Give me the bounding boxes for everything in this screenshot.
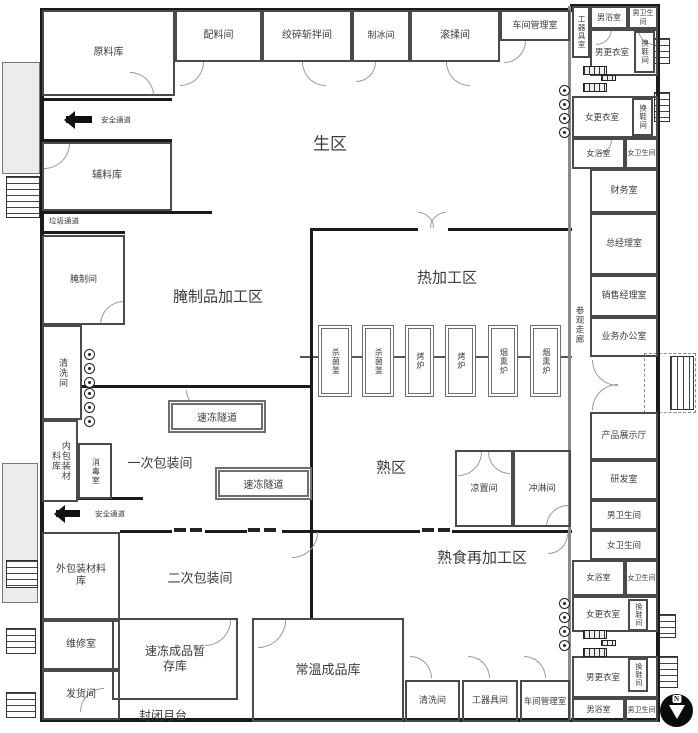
handwash-station-icon bbox=[84, 388, 95, 427]
cooling-room-label: 凉置间 bbox=[470, 483, 497, 494]
womens-bath-top-label: 女浴室 bbox=[587, 149, 611, 159]
mens-bath-top: 男浴室 bbox=[590, 6, 628, 29]
ice-making-room-label: 制冰间 bbox=[367, 30, 394, 41]
freeze-tunnel-2: 速冻隧道 bbox=[215, 467, 312, 500]
mens-toilet-mid-label: 男卫生间 bbox=[607, 510, 641, 521]
locker-bench-icon bbox=[583, 630, 607, 639]
curing-room: 腌制间 bbox=[42, 235, 125, 325]
ice-making-room: 制冰间 bbox=[352, 10, 410, 62]
business-office: 业务办公室 bbox=[590, 317, 658, 357]
shipping-room: 发货间 bbox=[42, 670, 120, 720]
smoker-1-label: 烟熏炉 bbox=[499, 348, 508, 375]
sales-manager-office-label: 销售经理室 bbox=[601, 290, 646, 301]
sliding-door-tick bbox=[248, 528, 260, 532]
outer-packing-material-warehouse: 外包装材料库 bbox=[42, 532, 120, 620]
womens-toilet-bottom: 女卫生间 bbox=[625, 560, 658, 596]
sliding-door-tick bbox=[422, 528, 434, 532]
mens-toilet-bottom: 男卫生间 bbox=[625, 698, 658, 722]
womens-bath-bottom-label: 女浴室 bbox=[587, 573, 611, 583]
inner-packing-material-warehouse-label: 内包装材料库 bbox=[50, 437, 70, 485]
wall-segment bbox=[42, 231, 125, 234]
compass-north-label: N bbox=[672, 695, 681, 703]
stairs-icon bbox=[6, 560, 38, 588]
washing-room-left-label: 清洗间 bbox=[57, 358, 67, 388]
wall-segment bbox=[310, 228, 313, 418]
workshop-office-top: 车间管理室 bbox=[500, 10, 570, 41]
outer-packing-material-warehouse-label: 外包装材料库 bbox=[52, 564, 110, 589]
frozen-product-temp-storage: 速冻成品暂存库 bbox=[112, 618, 238, 700]
grinding-chopping-room-label: 绞碎斩拌间 bbox=[282, 30, 332, 43]
door-swing-icon bbox=[446, 62, 470, 86]
locker-bench-icon bbox=[583, 648, 607, 657]
compass-icon: N bbox=[660, 694, 693, 727]
ingredient-room: 配料间 bbox=[175, 10, 262, 62]
wall-segment bbox=[452, 530, 572, 533]
shoe-change-room-bottom-m: 换鞋间 bbox=[628, 658, 648, 692]
curing-room-label: 腌制间 bbox=[70, 274, 97, 285]
freeze-tunnel-1: 速冻隧道 bbox=[168, 400, 266, 433]
mens-locker-bottom-label: 男更衣室 bbox=[586, 672, 620, 683]
zone-cured-processing: 腌制品加工区 bbox=[173, 286, 263, 307]
washing-room-bottom-label: 清洗间 bbox=[419, 695, 446, 706]
door-swing-icon bbox=[548, 534, 568, 554]
locker-bench-icon bbox=[601, 75, 616, 81]
zone-hot-processing: 热加工区 bbox=[417, 267, 477, 288]
exit-dashed-outline bbox=[644, 353, 696, 413]
sliding-door-tick bbox=[264, 528, 276, 532]
oven-2-label: 烤炉 bbox=[456, 352, 465, 370]
sterilizer-2: 杀菌釜 bbox=[362, 325, 394, 397]
smoker-2: 烟熏炉 bbox=[530, 325, 561, 397]
womens-toilet-top: 女卫生间 bbox=[625, 138, 658, 169]
workshop-office-bottom-label: 车间管理室 bbox=[524, 696, 567, 707]
zone-secondary-packing: 二次包装间 bbox=[167, 568, 232, 587]
mens-bath-bottom-label: 男浴室 bbox=[587, 705, 611, 715]
door-swing-icon bbox=[430, 212, 446, 228]
zone-cooked-reprocessing: 熟食再加工区 bbox=[437, 547, 527, 568]
cooling-room: 凉置间 bbox=[455, 450, 513, 527]
wall-segment bbox=[120, 530, 172, 533]
disinfection-room-label: 消毒室 bbox=[91, 458, 100, 485]
compass-arrow-icon bbox=[669, 705, 685, 719]
oven-1-label: 烤炉 bbox=[415, 352, 424, 370]
product-showroom-label: 产品展示厅 bbox=[601, 430, 646, 441]
oven-2: 烤炉 bbox=[445, 325, 476, 397]
tool-room-bottom-label: 工器具间 bbox=[472, 695, 508, 706]
door-swing-icon bbox=[592, 384, 618, 410]
door-swing-icon bbox=[356, 62, 376, 82]
door-swing-icon bbox=[180, 62, 204, 86]
shoe-change-room-bottom-m-label: 换鞋间 bbox=[634, 663, 642, 687]
frozen-product-temp-storage-label: 速冻成品暂存库 bbox=[140, 644, 210, 674]
stairs-icon bbox=[6, 628, 36, 654]
zone-cooked-area: 熟区 bbox=[376, 457, 406, 478]
door-swing-icon bbox=[410, 656, 432, 678]
stairs-icon bbox=[658, 656, 678, 688]
shower-room: 冲淋间 bbox=[513, 450, 571, 527]
finance-office: 财务室 bbox=[590, 169, 658, 213]
locker-bench-icon bbox=[583, 83, 607, 92]
disinfection-room: 消毒室 bbox=[78, 443, 112, 499]
door-swing-icon bbox=[592, 360, 618, 386]
workshop-office-top-label: 车间管理室 bbox=[512, 20, 557, 31]
handwash-station-icon bbox=[559, 598, 570, 651]
general-manager-office: 总经理室 bbox=[590, 213, 658, 275]
sliding-door-tick bbox=[174, 528, 186, 532]
locker-bench-icon bbox=[583, 66, 607, 75]
factory-floor-plan: N 原料库配料间绞碎斩拌间制冰间滚揉间车间管理室工器具室男浴室男卫生间男更衣室换… bbox=[0, 0, 698, 733]
wall-segment bbox=[42, 98, 172, 101]
tumbling-room-label: 滚揉间 bbox=[440, 30, 470, 43]
freeze-tunnel-2-label: 速冻隧道 bbox=[244, 476, 284, 491]
sterilizer-1: 杀菌釜 bbox=[318, 325, 352, 397]
raw-material-warehouse: 原料库 bbox=[42, 10, 175, 96]
wall-segment bbox=[205, 530, 247, 533]
sliding-door-tick bbox=[190, 528, 202, 532]
door-swing-icon bbox=[292, 532, 318, 558]
womens-toilet-top-label: 女卫生间 bbox=[628, 149, 656, 158]
mens-toilet-top-label: 男卫生间 bbox=[630, 9, 656, 27]
mens-toilet-top: 男卫生间 bbox=[628, 6, 658, 29]
wall-segment bbox=[448, 228, 572, 231]
maintenance-room: 维修室 bbox=[42, 620, 120, 670]
freeze-tunnel-1-label: 速冻隧道 bbox=[197, 409, 237, 424]
smoker-1: 烟熏炉 bbox=[488, 325, 518, 397]
closed-dock: 封闭月台 bbox=[139, 707, 187, 724]
tool-room-bottom: 工器具间 bbox=[462, 680, 518, 722]
mens-bath-top-label: 男浴室 bbox=[597, 13, 621, 23]
mens-locker-top-label: 男更衣室 bbox=[595, 47, 629, 58]
general-manager-office-label: 总经理室 bbox=[606, 238, 642, 249]
smoker-2-label: 烟熏炉 bbox=[541, 348, 550, 375]
oven-1: 烤炉 bbox=[405, 325, 434, 397]
wall-segment bbox=[310, 228, 418, 231]
rd-room: 研发室 bbox=[590, 460, 658, 500]
grinding-chopping-room: 绞碎斩拌间 bbox=[262, 10, 352, 62]
womens-bath-top: 女浴室 bbox=[572, 138, 625, 169]
womens-toilet-bottom-label: 女卫生间 bbox=[628, 574, 656, 583]
tool-room-top: 工器具室 bbox=[572, 6, 590, 58]
shoe-change-room-top-m-label: 换鞋间 bbox=[640, 39, 648, 65]
raw-material-warehouse-label: 原料库 bbox=[94, 47, 124, 60]
womens-bath-bottom: 女浴室 bbox=[572, 560, 625, 596]
business-office-label: 业务办公室 bbox=[601, 331, 646, 342]
shoe-change-room-bottom-f-label: 换鞋间 bbox=[634, 603, 642, 627]
ambient-product-warehouse: 常温成品库 bbox=[252, 618, 404, 722]
zone-primary-packing: 一次包装间 bbox=[127, 453, 192, 472]
tumbling-room: 滚揉间 bbox=[410, 10, 500, 62]
safety-passage-top-label: 安全通道 bbox=[101, 115, 131, 126]
workshop-office-bottom: 车间管理室 bbox=[520, 680, 570, 722]
aux-material-warehouse: 辅料库 bbox=[42, 142, 172, 211]
tool-room-top-label: 工器具室 bbox=[577, 15, 585, 49]
visit-corridor: 参观走廊 bbox=[574, 306, 586, 344]
ambient-product-warehouse-label: 常温成品库 bbox=[295, 662, 360, 678]
sales-manager-office: 销售经理室 bbox=[590, 275, 658, 317]
inner-packing-material-warehouse: 内包装材料库 bbox=[42, 420, 78, 502]
locker-bench-icon bbox=[601, 640, 616, 646]
maintenance-room-label: 维修室 bbox=[66, 639, 96, 652]
door-swing-icon bbox=[302, 62, 326, 86]
rd-room-label: 研发室 bbox=[610, 474, 637, 485]
safety-passage-arrow-icon bbox=[56, 510, 80, 517]
door-swing-icon bbox=[468, 656, 490, 678]
stairs-icon bbox=[6, 176, 40, 218]
shoe-change-room-top-f-label: 换鞋间 bbox=[638, 104, 646, 130]
sterilizer-1-label: 杀菌釜 bbox=[331, 348, 340, 375]
wall-segment bbox=[42, 211, 212, 214]
dock-platform bbox=[2, 62, 40, 174]
sliding-door-tick bbox=[438, 528, 450, 532]
handwash-station-icon bbox=[84, 349, 95, 388]
washing-room-bottom: 清洗间 bbox=[405, 680, 460, 722]
safety-passage-arrow-icon bbox=[66, 116, 92, 123]
womens-toilet-mid-label: 女卫生间 bbox=[607, 540, 641, 551]
ingredient-room-label: 配料间 bbox=[204, 30, 234, 43]
door-swing-icon bbox=[524, 656, 546, 678]
handwash-station-icon bbox=[559, 85, 570, 138]
mens-toilet-mid: 男卫生间 bbox=[590, 500, 658, 530]
shipping-room-label: 发货间 bbox=[66, 689, 96, 702]
shoe-change-room-top-m: 换鞋间 bbox=[634, 31, 655, 73]
womens-locker-top-label: 女更衣室 bbox=[585, 112, 619, 123]
door-swing-icon bbox=[504, 41, 526, 63]
safety-passage-mid-label: 安全通道 bbox=[95, 509, 125, 520]
shower-room-label: 冲淋间 bbox=[528, 483, 555, 494]
sterilizer-2-label: 杀菌釜 bbox=[374, 348, 383, 375]
womens-toilet-mid: 女卫生间 bbox=[590, 530, 658, 560]
shoe-change-room-bottom-f: 换鞋间 bbox=[628, 599, 648, 631]
womens-locker-bottom-label: 女更衣室 bbox=[586, 609, 620, 620]
mens-toilet-bottom-label: 男卫生间 bbox=[628, 706, 656, 715]
washing-room-left: 清洗间 bbox=[42, 325, 82, 420]
mens-bath-bottom: 男浴室 bbox=[572, 698, 625, 722]
shoe-change-room-top-f: 换鞋间 bbox=[632, 98, 653, 136]
aux-material-warehouse-label: 辅料库 bbox=[92, 170, 122, 183]
finance-office-label: 财务室 bbox=[610, 185, 637, 196]
garbage-passage: 垃圾通道 bbox=[49, 216, 79, 227]
zone-raw-area: 生区 bbox=[313, 130, 347, 155]
stairs-icon bbox=[6, 692, 36, 718]
product-showroom: 产品展示厅 bbox=[590, 412, 658, 460]
wall-segment bbox=[82, 385, 310, 388]
